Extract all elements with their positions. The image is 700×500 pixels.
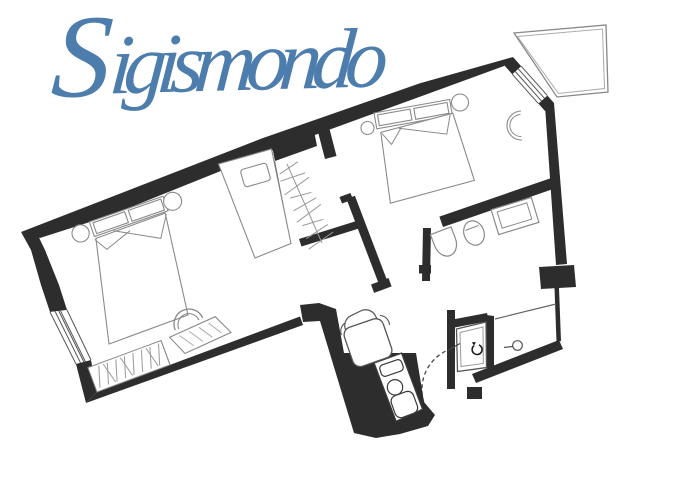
svg-text:igismondo: igismondo <box>107 11 392 112</box>
